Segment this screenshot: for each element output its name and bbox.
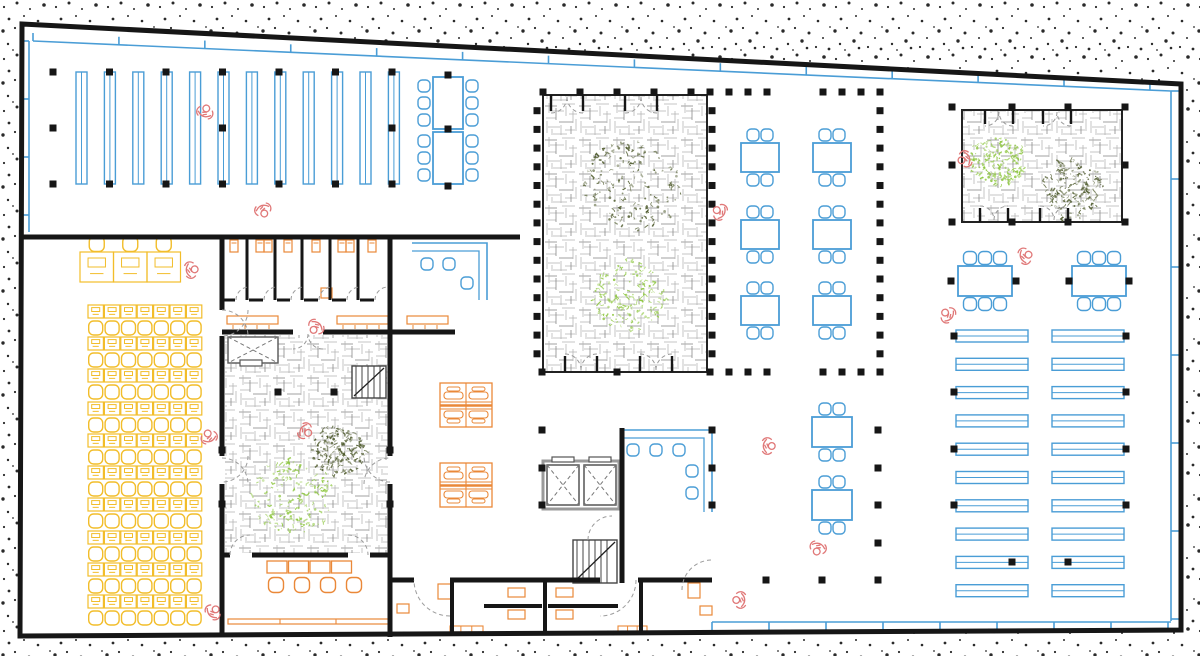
column [709, 427, 716, 434]
column [949, 219, 956, 226]
column [709, 126, 716, 133]
courtyard-small [962, 110, 1122, 222]
column [50, 181, 57, 188]
column [332, 69, 339, 76]
column [951, 389, 958, 396]
column [707, 89, 714, 96]
column [877, 163, 884, 170]
column [877, 219, 884, 226]
column [709, 182, 716, 189]
column [1123, 446, 1130, 453]
column [219, 69, 226, 76]
column [820, 369, 827, 376]
column [877, 182, 884, 189]
courtyard-large [543, 95, 707, 372]
column [875, 540, 882, 547]
column [534, 332, 541, 339]
column [534, 219, 541, 226]
column [445, 72, 452, 79]
column [709, 145, 716, 152]
column [709, 219, 716, 226]
paving-hatch [962, 110, 1122, 222]
column [709, 201, 716, 208]
column [276, 69, 283, 76]
column [50, 69, 57, 76]
column [106, 181, 113, 188]
column [1065, 219, 1072, 226]
column [1122, 219, 1129, 226]
elevator-core [543, 457, 619, 509]
column [877, 332, 884, 339]
column [534, 182, 541, 189]
column [1122, 104, 1129, 111]
column [540, 89, 547, 96]
column [820, 89, 827, 96]
column [877, 89, 884, 96]
floor-plan-canvas [0, 0, 1200, 656]
column [949, 104, 956, 111]
column [539, 427, 546, 434]
column [877, 201, 884, 208]
column [1013, 278, 1020, 285]
column [389, 181, 396, 188]
column [445, 183, 452, 190]
column [539, 502, 546, 509]
column [1123, 502, 1130, 509]
column [534, 350, 541, 357]
column [445, 126, 452, 133]
column [709, 276, 716, 283]
column [534, 126, 541, 133]
column [539, 465, 546, 472]
column [387, 501, 394, 508]
column [163, 181, 170, 188]
column [877, 107, 884, 114]
column [651, 89, 658, 96]
floor-plan-svg [0, 0, 1200, 656]
column [534, 257, 541, 264]
column [709, 332, 716, 339]
column [949, 162, 956, 169]
column [877, 276, 884, 283]
column [534, 313, 541, 320]
column [534, 276, 541, 283]
column [709, 107, 716, 114]
column [745, 369, 752, 376]
column [726, 369, 733, 376]
column [534, 145, 541, 152]
column [332, 181, 339, 188]
column [877, 257, 884, 264]
column [1065, 104, 1072, 111]
column [709, 257, 716, 264]
column [1065, 559, 1072, 566]
column [709, 238, 716, 245]
column [534, 238, 541, 245]
column [875, 465, 882, 472]
column [948, 278, 955, 285]
column [539, 369, 546, 376]
column [839, 369, 846, 376]
column [764, 89, 771, 96]
column [877, 294, 884, 301]
column [1122, 162, 1129, 169]
column [709, 294, 716, 301]
column [858, 89, 865, 96]
column [709, 313, 716, 320]
column [1123, 333, 1130, 340]
column [106, 69, 113, 76]
column [1009, 219, 1016, 226]
column [331, 389, 338, 396]
column [764, 369, 771, 376]
column [875, 502, 882, 509]
skylight-shaft [228, 337, 278, 366]
column [875, 427, 882, 434]
column [819, 577, 826, 584]
column [387, 447, 394, 454]
column [534, 107, 541, 114]
column [877, 126, 884, 133]
column [389, 125, 396, 132]
column [688, 89, 695, 96]
column [951, 502, 958, 509]
column [858, 369, 865, 376]
column [219, 125, 226, 132]
column [50, 125, 57, 132]
column [276, 181, 283, 188]
column [709, 465, 716, 472]
column [219, 181, 226, 188]
column [1009, 559, 1016, 566]
column [534, 294, 541, 301]
column [219, 501, 226, 508]
column [877, 313, 884, 320]
column [534, 163, 541, 170]
column [614, 89, 621, 96]
column [877, 369, 884, 376]
column [875, 577, 882, 584]
column [745, 89, 752, 96]
column [709, 502, 716, 509]
column [389, 69, 396, 76]
column [534, 201, 541, 208]
column [1123, 389, 1130, 396]
column [951, 333, 958, 340]
column [219, 447, 226, 454]
column [951, 446, 958, 453]
column [577, 89, 584, 96]
column [707, 369, 714, 376]
column [709, 350, 716, 357]
column [839, 89, 846, 96]
column [275, 389, 282, 396]
column [763, 577, 770, 584]
column [1066, 278, 1073, 285]
paving-hatch [543, 95, 707, 372]
column [1009, 104, 1016, 111]
column [614, 369, 621, 376]
column [709, 163, 716, 170]
column [877, 350, 884, 357]
column [877, 145, 884, 152]
column [877, 238, 884, 245]
column [163, 69, 170, 76]
column [726, 89, 733, 96]
column [1126, 278, 1133, 285]
